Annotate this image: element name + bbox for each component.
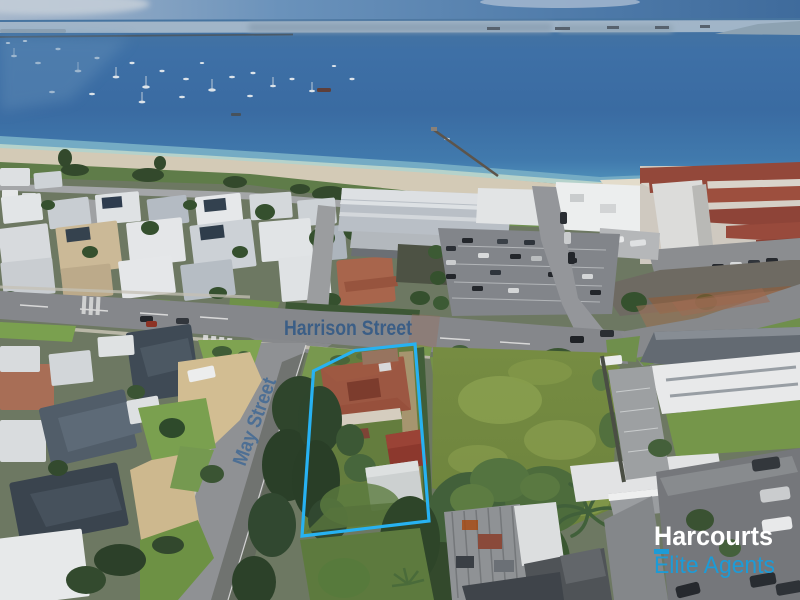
svg-text:Harcourts: Harcourts [654, 521, 773, 551]
svg-text:Elite Agents: Elite Agents [654, 552, 775, 579]
svg-text:Harrison Street: Harrison Street [284, 317, 412, 340]
